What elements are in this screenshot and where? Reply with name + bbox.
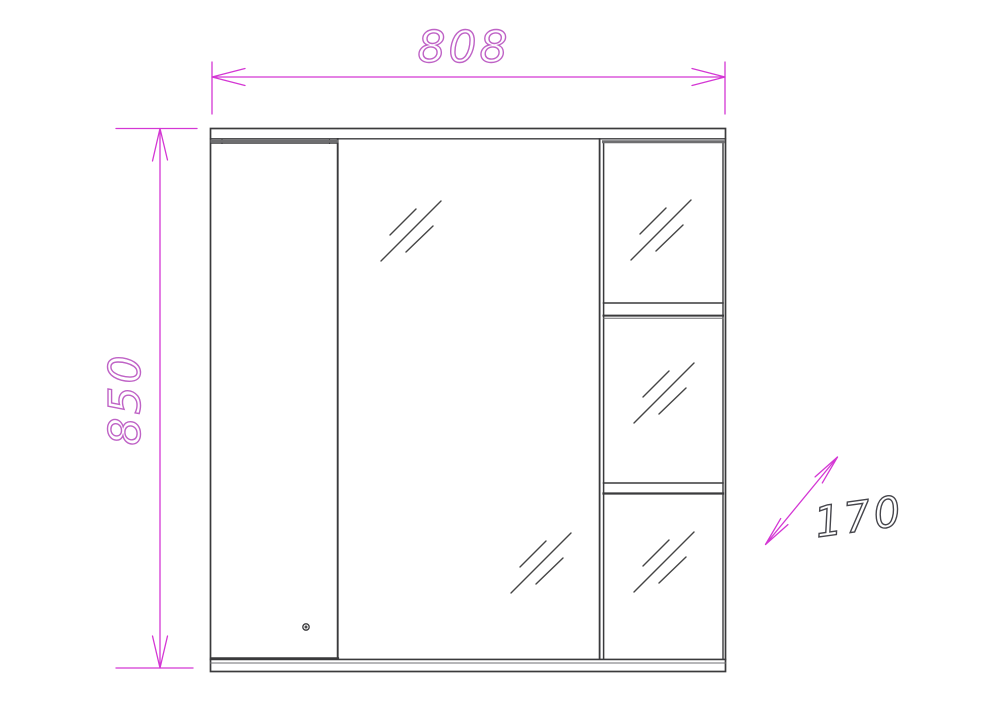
height-dimension-label: 850: [100, 353, 151, 446]
glass-hatch-icon: [511, 533, 571, 593]
cabinet-body: [211, 129, 726, 672]
cabinet-outline: [211, 129, 726, 672]
glass-hatch-icon: [381, 201, 441, 261]
mirror-cabinet-drawing: 808 850 170: [0, 0, 1000, 706]
door-knob: [303, 624, 309, 630]
dimension-annotations: 808 850 170: [100, 22, 907, 668]
glass-hatch-icon: [634, 532, 694, 592]
panel-shadow-lines: [211, 141, 726, 663]
glass-hatch-icon: [631, 200, 691, 260]
technical-drawing-canvas: 808 850 170: [0, 0, 1000, 706]
glass-hatch-icon: [634, 363, 694, 423]
door-knob-center: [305, 626, 307, 628]
width-dimension-label: 808: [418, 22, 511, 73]
glass-hatch-symbols: [381, 200, 694, 593]
depth-dimension-label: 170: [811, 486, 906, 547]
